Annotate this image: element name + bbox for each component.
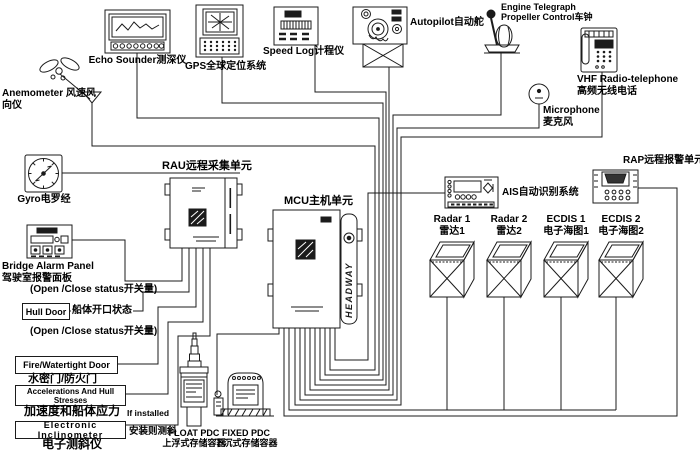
- fixed-pdc-icon: [214, 373, 274, 416]
- anemometer-label: Anemometer 风速风 向仪: [2, 88, 96, 111]
- gps-label: GPS全球定位系统: [185, 61, 266, 73]
- speed-log-label: Speed Log计程仪: [263, 46, 344, 58]
- radar2-console-icon: [487, 242, 531, 297]
- ecdis2-label: ECDIS 2 电子海图2: [586, 214, 656, 237]
- bridge-status-note: (Open /Close status开关量): [30, 284, 157, 296]
- mcu-brand-vertical-text: HEADWAY: [344, 262, 354, 318]
- ecdis1-console-icon: [544, 242, 588, 297]
- echo-sounder-label: Echo Sounder测深仪: [80, 55, 195, 67]
- bridge-alarm-panel-label: Bridge Alarm Panel 驾驶室报警面板: [2, 261, 94, 284]
- wire-console-bus: [289, 328, 616, 410]
- autopilot-label: Autopilot自动舵: [410, 17, 484, 29]
- fire-watertight-door-label: 水密门/防火门: [28, 373, 97, 386]
- rap-label: RAP远程报警单元: [623, 155, 700, 167]
- accelerations-label: 加速度和船体应力: [24, 405, 120, 419]
- bridge-alarm-panel-icon: [27, 225, 72, 258]
- electronic-inclinometer-label: 电子测斜仪: [42, 438, 102, 452]
- ais-label: AIS自动识别系统: [502, 187, 579, 199]
- wire-gps-mcu: [222, 57, 383, 380]
- gps-icon: [196, 5, 243, 57]
- wire-accelerations-rau: [124, 248, 203, 394]
- accelerations-box: Accelerations And Hull Stresses: [15, 385, 126, 406]
- rau-cabinet-icon: [165, 178, 242, 248]
- speed-log-icon: [274, 7, 318, 45]
- mcu-label: MCU主机单元: [284, 195, 353, 208]
- vhf-phone-icon: [581, 28, 617, 72]
- rau-label: RAU远程采集单元: [162, 160, 252, 173]
- ais-transponder-icon: [445, 177, 498, 208]
- vhf-label: VHF Radio-telephone 高频无线电话: [577, 74, 678, 97]
- wire-microphone-mcu: [300, 104, 539, 400]
- microphone-label: Microphone 麦克风: [543, 105, 600, 128]
- rap-panel-icon: [593, 170, 638, 203]
- if-installed-note: If installed: [127, 409, 169, 419]
- radar1-console-icon: [430, 242, 474, 297]
- hull-door-box: Hull Door: [22, 303, 70, 320]
- wire-autopilot-mcu: [310, 67, 389, 390]
- wire-echo-mcu: [137, 53, 379, 375]
- vdr-system-diagram: HEADWAY Anemometer 风速风 向仪 Echo Sounder测深…: [0, 0, 700, 452]
- echo-sounder-icon: [105, 10, 170, 53]
- gyro-compass-icon: [25, 155, 62, 192]
- fixed-pdc-label: FIXED PDC 下沉式存储容器: [212, 428, 280, 449]
- fire-watertight-door-box: Fire/Watertight Door: [15, 356, 118, 374]
- autopilot-icon: [353, 7, 407, 67]
- microphone-icon: [529, 84, 549, 104]
- engine-telegraph-label: Engine Telegraph Propeller Control车钟: [501, 2, 593, 23]
- hull-door-status-note: (Open /Close status开关量): [30, 326, 157, 338]
- hull-door-side-label: 船体开口状态: [71, 305, 133, 317]
- float-pdc-icon: [180, 333, 208, 426]
- ecdis2-console-icon: [599, 242, 643, 297]
- gyro-label: Gyro电罗经: [14, 194, 74, 206]
